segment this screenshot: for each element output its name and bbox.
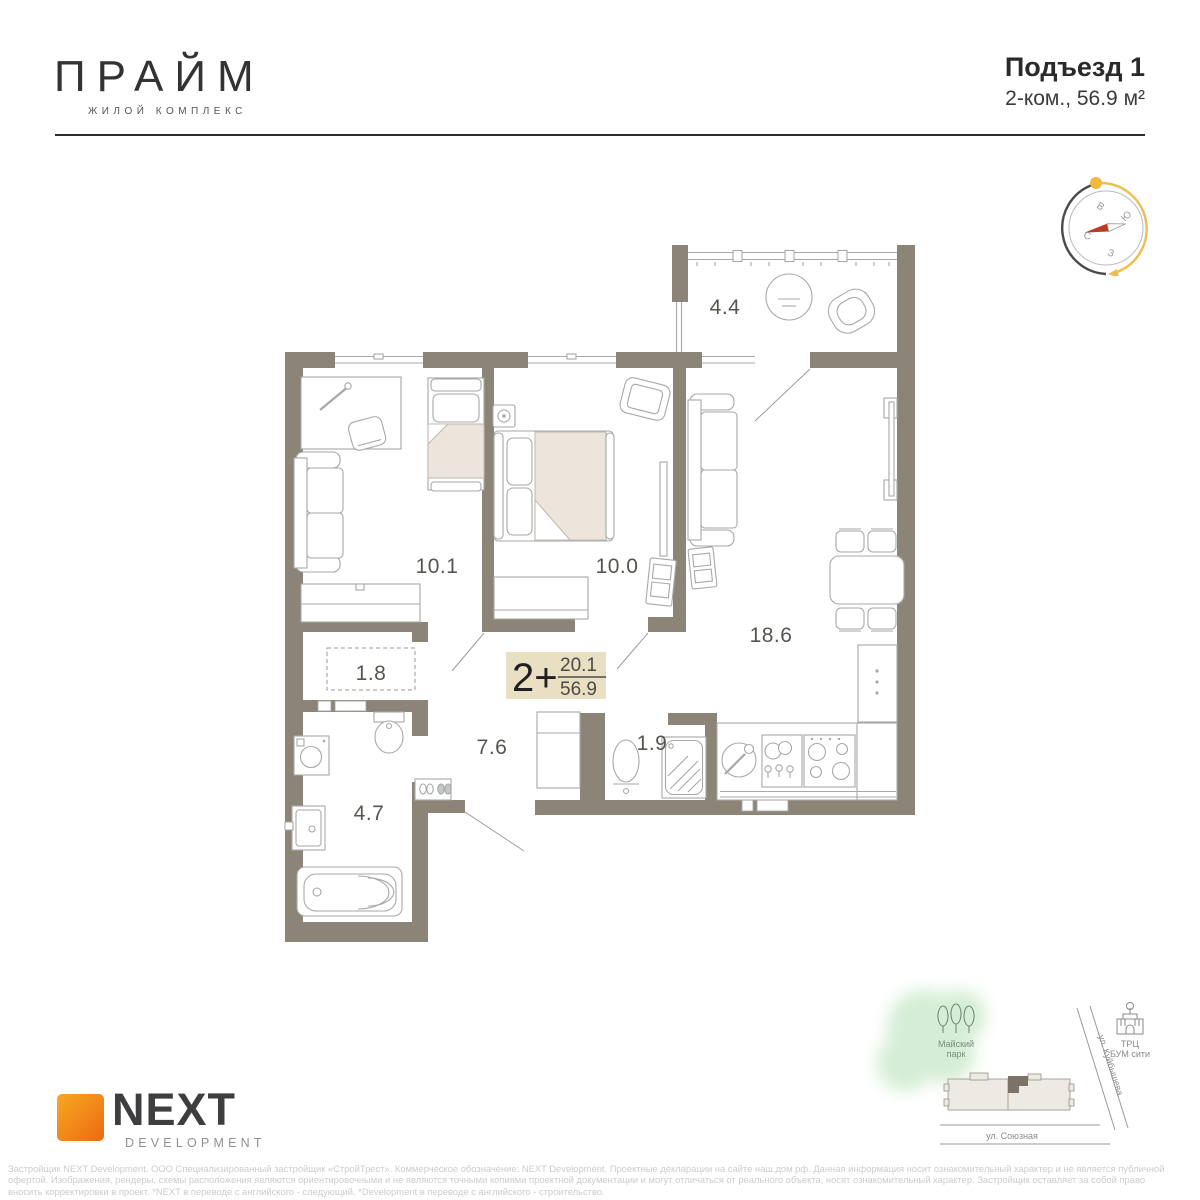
disclaimer-line-3: вносить корректировки в проект. *NEXT в … xyxy=(8,1186,1196,1197)
location-minimap: Майский парк ТРЦ БУМ сити ул. Куйбышева xyxy=(860,978,1190,1163)
toilet-bathroom xyxy=(374,712,404,753)
room-area-living: 18.6 xyxy=(750,624,793,647)
hob-lights-icon xyxy=(762,735,802,787)
armchair xyxy=(618,376,671,422)
balcony-door-swing xyxy=(755,369,810,421)
dining-table xyxy=(830,556,904,604)
round-table xyxy=(766,274,812,320)
room-area-wardrobe: 1.8 xyxy=(356,662,387,685)
building-footprint xyxy=(944,1073,1074,1110)
bathtub xyxy=(297,867,402,916)
hallway-cabinet xyxy=(537,712,580,788)
balcony-furniture xyxy=(766,274,880,339)
developer-division: DEVELOPMENT xyxy=(125,1136,266,1150)
disclaimer-line-2: офертой. Изображения, рендеры, схемы рас… xyxy=(8,1174,1196,1185)
living-furniture xyxy=(688,394,904,800)
shower-tray xyxy=(662,737,706,798)
wardrobe-unit xyxy=(301,584,420,622)
park-label-line2: парк xyxy=(947,1049,966,1059)
dining-set xyxy=(830,529,904,631)
stove-icon xyxy=(804,735,855,787)
room-area-bedroom2: 10.0 xyxy=(596,555,639,578)
room-area-balcony: 4.4 xyxy=(710,296,741,319)
park-label-line1: Майский xyxy=(938,1039,974,1049)
developer-logo-mark xyxy=(57,1094,104,1141)
bedroom2-door-swing xyxy=(617,633,648,669)
washing-machine xyxy=(294,736,329,775)
dresser xyxy=(494,577,588,619)
legal-disclaimer: Застройщик NEXT Development. ООО Специал… xyxy=(8,1163,1196,1197)
kitchen-counter xyxy=(717,723,897,800)
tv-living xyxy=(884,398,897,500)
tv-bedroom2 xyxy=(660,462,667,556)
living-area-value: 20.1 xyxy=(560,655,597,676)
mall-label-line2: БУМ сити xyxy=(1110,1049,1150,1059)
mall-label: ТРЦ БУМ сити xyxy=(1110,1039,1150,1059)
room-area-bedroom1: 10.1 xyxy=(416,555,459,578)
area-badge: 2+ 20.1 56.9 xyxy=(506,652,606,700)
developer-logo: NEXT DEVELOPMENT xyxy=(57,1092,317,1156)
bedroom2-furniture xyxy=(493,376,676,619)
balcony-chair xyxy=(823,284,880,339)
fridge xyxy=(858,645,897,722)
single-bed xyxy=(428,378,484,491)
smoke-detector-icon xyxy=(493,405,515,427)
disclaimer-line-1: Застройщик NEXT Development. ООО Специал… xyxy=(8,1163,1196,1174)
room-area-hallway: 7.6 xyxy=(477,736,508,759)
street-soyuznaya-label: ул. Союзная xyxy=(986,1131,1038,1141)
bedroom1-door-swing xyxy=(452,633,484,671)
sofa-small xyxy=(294,452,343,572)
mall-label-line1: ТРЦ xyxy=(1121,1039,1140,1049)
total-area-value: 56.9 xyxy=(560,679,597,700)
glazing-ticks xyxy=(697,262,889,266)
developer-name: NEXT xyxy=(112,1084,236,1136)
street-kuybysheva-lines xyxy=(1077,1006,1128,1130)
nightstand-living xyxy=(688,547,717,589)
mall-icon xyxy=(1117,1003,1143,1035)
shoe-rack-icon xyxy=(415,779,451,800)
double-bed xyxy=(494,431,614,541)
page: ПРАЙМ ЖИЛОЙ КОМПЛЕКС Подъезд 1 2-ком., 5… xyxy=(0,0,1200,1200)
entry-door-swing xyxy=(465,812,524,851)
windows xyxy=(335,251,897,369)
bedroom1-furniture xyxy=(294,377,484,622)
toilet-wc xyxy=(613,740,639,794)
room-area-wc: 1.9 xyxy=(637,732,668,755)
room-area-bathroom: 4.7 xyxy=(354,802,385,825)
rooms-type-label: 2+ xyxy=(512,656,558,700)
sofa-large xyxy=(688,394,737,546)
nightstand-bedroom2 xyxy=(646,558,677,606)
